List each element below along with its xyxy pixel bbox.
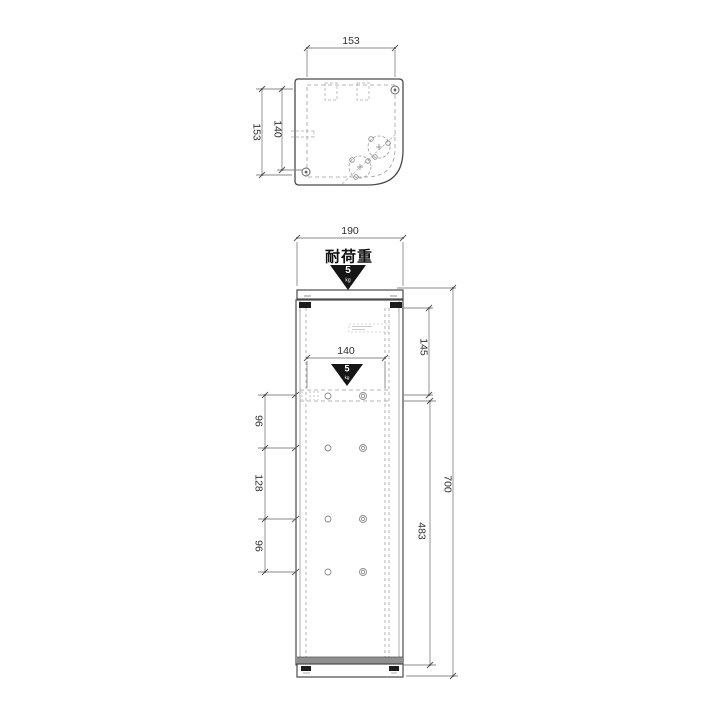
load-capacity-label: 耐荷重 xyxy=(325,246,373,267)
plan-hole-top-right-center xyxy=(394,89,397,92)
front-dim-pitch-label-1: 96 xyxy=(253,415,264,427)
base-bracket-right xyxy=(389,666,399,671)
front-dim-total-height-label: 700 xyxy=(442,475,453,493)
mount-bracket-right xyxy=(390,302,402,308)
load-capacity-unit-inner: kg xyxy=(345,376,350,381)
bottom-shadow-band xyxy=(297,657,403,664)
technical-drawing-page: 153 153 140 190 耐荷重 5 kg 140 5 kg 145 70… xyxy=(0,0,713,713)
plan-dim-depth-label: 153 xyxy=(251,123,262,141)
front-dim-pitch-label-3: 96 xyxy=(253,540,264,552)
front-dim-lower-section-label: 483 xyxy=(416,522,427,540)
load-capacity-value-top: 5 xyxy=(345,266,351,276)
load-capacity-value-inner: 5 xyxy=(344,365,349,374)
base-plate xyxy=(297,664,403,677)
plan-view xyxy=(256,45,403,185)
base-bracket-left xyxy=(301,666,311,671)
plan-dim-top xyxy=(304,45,398,77)
top-plate xyxy=(297,290,403,299)
front-dim-pitch-label-2: 128 xyxy=(253,474,264,492)
plan-dim-hole-pitch-label: 140 xyxy=(272,120,283,138)
front-dim-top-section-label: 145 xyxy=(418,338,429,356)
front-dim-shelf-width-label: 140 xyxy=(337,346,355,357)
plan-dim-top-label: 153 xyxy=(342,36,360,47)
drawing-linework xyxy=(0,0,713,713)
front-dim-width-label: 190 xyxy=(341,226,359,237)
front-view xyxy=(258,235,458,679)
mount-bracket-left xyxy=(299,302,311,308)
load-capacity-unit-top: kg xyxy=(345,279,350,284)
plan-hole-bottom-left-center xyxy=(305,171,308,174)
